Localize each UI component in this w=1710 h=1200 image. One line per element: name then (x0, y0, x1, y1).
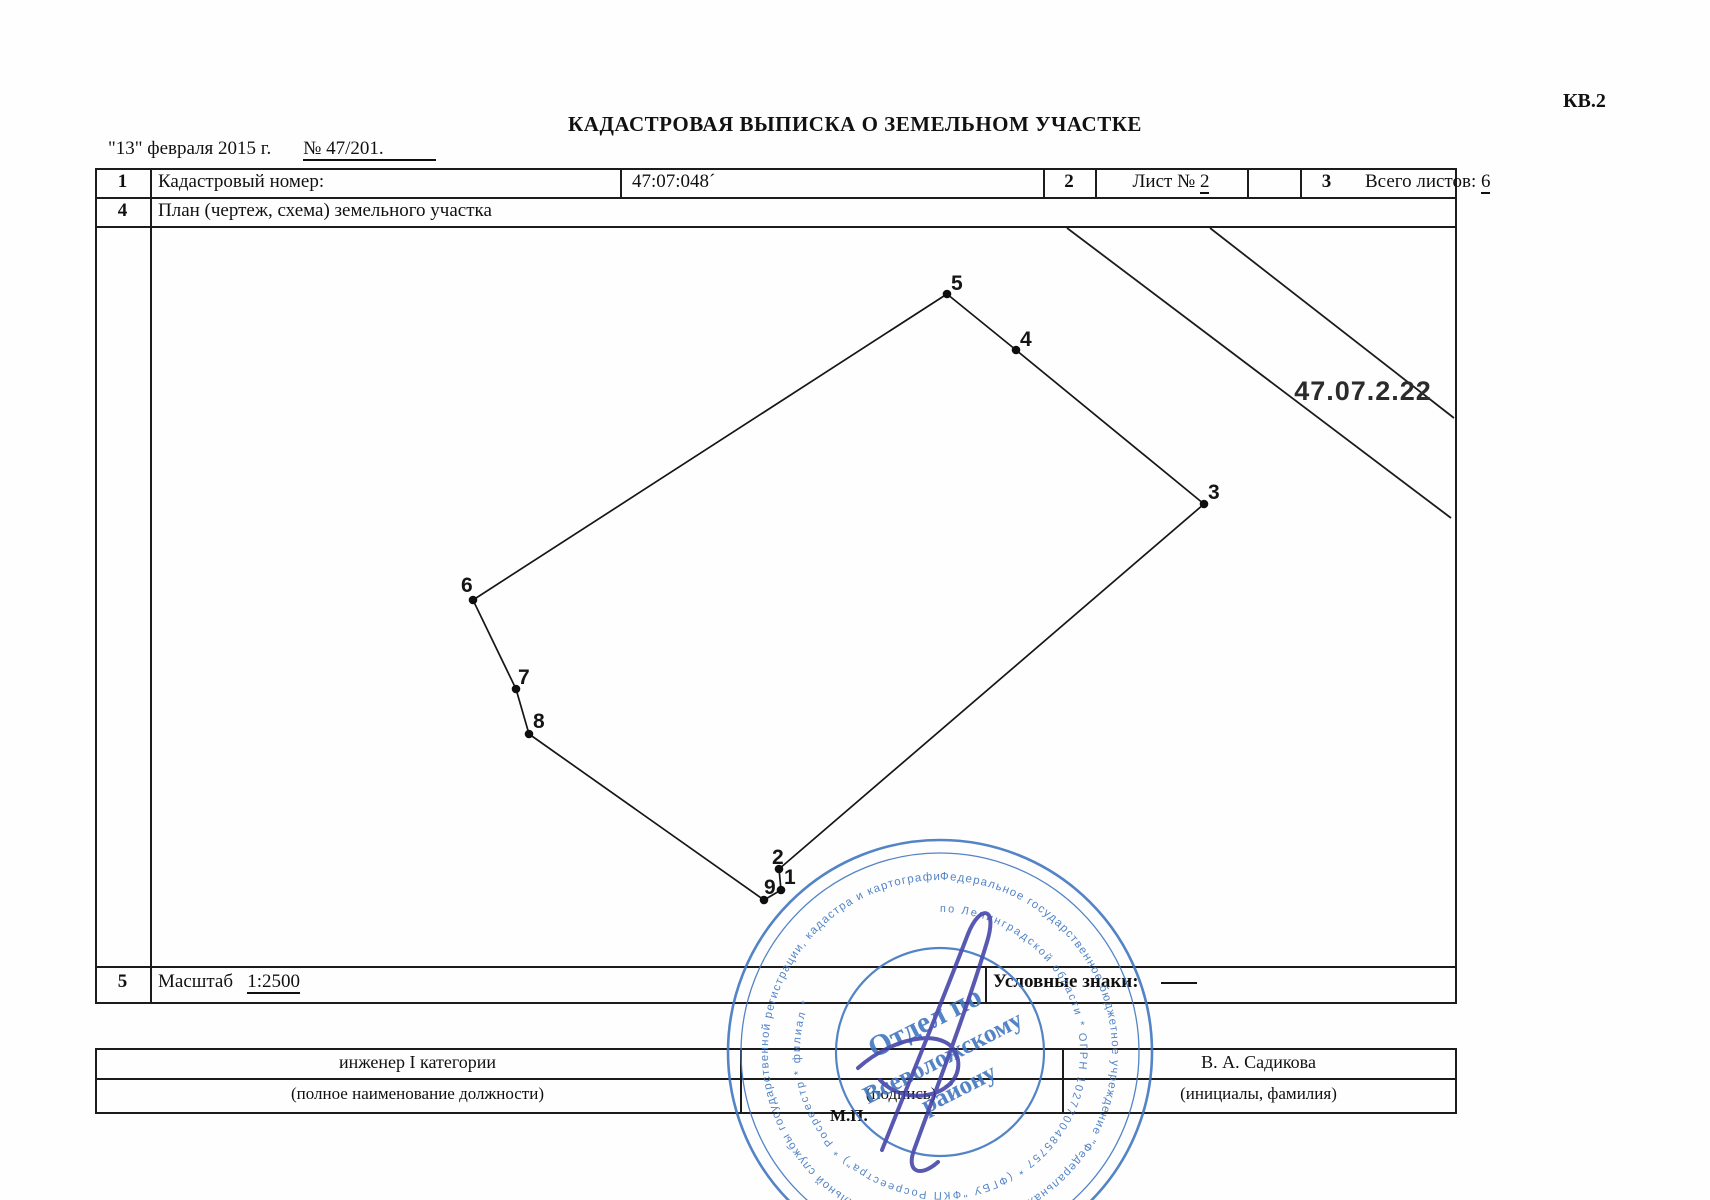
stamp-center-text: Отдел по Всеволожскому району (839, 968, 1043, 1141)
scale-value: 1:2500 (247, 971, 300, 994)
signature-caption: (подпись) (740, 1084, 1062, 1104)
total-sheets: Всего листов: 6 (1353, 171, 1615, 193)
table-border (620, 168, 622, 197)
seal-mark: М.П. (830, 1106, 868, 1126)
vertex-dot (1012, 346, 1021, 355)
table-border (95, 168, 97, 1004)
table-border (740, 1048, 742, 1114)
cadastral-extract-page: КВ.2 КАДАСТРОВАЯ ВЫПИСКА О ЗЕМЕЛЬНОМ УЧА… (0, 0, 1710, 1200)
table-border (1247, 168, 1249, 197)
vertex-label: 2 (772, 846, 784, 869)
vertex-label: 9 (764, 876, 776, 899)
position-caption: (полное наименование должности) (95, 1084, 740, 1104)
sheet-value: 2 (1200, 171, 1210, 194)
scale-row: Масштаб 1:2500 (158, 971, 300, 993)
table-border (95, 1078, 1457, 1080)
cadastral-number-value: 47:07:048´ (632, 171, 715, 193)
table-border (95, 1048, 1457, 1050)
svg-text:Отдел по: Отдел по (863, 980, 987, 1065)
table-border (95, 197, 1457, 199)
legend-label: Условные знаки: (993, 971, 1139, 992)
table-border (95, 1002, 1457, 1004)
vertex-dot (525, 730, 534, 739)
vertex-label: 7 (518, 666, 530, 689)
cadastral-block-label: 47.07.2.22 (1294, 376, 1432, 406)
sheet-number: Лист № 2 (1095, 171, 1247, 193)
vertex-dot (943, 290, 952, 299)
row-index: 4 (95, 200, 150, 222)
total-sheets-label: Всего листов: (1365, 171, 1476, 192)
plan-section-label: План (чертеж, схема) земельного участка (158, 200, 492, 222)
table-border (985, 966, 987, 1002)
row-index: 1 (95, 171, 150, 193)
table-border (95, 966, 1457, 968)
vertex-dot (1200, 500, 1209, 509)
document-title: КАДАСТРОВАЯ ВЫПИСКА О ЗЕМЕЛЬНОМ УЧАСТКЕ (0, 112, 1710, 137)
parcel-plan: 47.07.2.22543219876 (151, 228, 1456, 966)
name-caption: (инициалы, фамилия) (1062, 1084, 1455, 1104)
form-code: КВ.2 (1563, 90, 1606, 113)
row-index: 5 (95, 971, 150, 993)
sheet-label: Лист № (1133, 171, 1196, 192)
cadastral-number-label: Кадастровый номер: (158, 171, 324, 193)
date-line: "13" февраля 2015 г.№ 47/201. (108, 138, 436, 160)
total-sheets-value: 6 (1481, 171, 1491, 194)
scale-label: Масштаб (158, 971, 233, 992)
document-number: № 47/201. (303, 138, 435, 161)
legend-row: Условные знаки: (993, 971, 1197, 993)
vertex-label: 1 (784, 866, 796, 889)
road-line (1067, 228, 1451, 518)
vertex-label: 6 (461, 574, 473, 597)
legend-line-symbol (1161, 982, 1197, 984)
parcel-polygon (473, 294, 1204, 900)
table-border (95, 1112, 1457, 1114)
vertex-label: 4 (1020, 328, 1032, 351)
row-index: 2 (1043, 171, 1095, 193)
signatory-name: В. А. Садикова (1062, 1052, 1455, 1073)
vertex-label: 5 (951, 272, 963, 295)
table-border (95, 168, 1457, 170)
vertex-label: 8 (533, 710, 545, 733)
position-title: инженер I категории (95, 1052, 740, 1073)
date-text: "13" февраля 2015 г. (108, 138, 271, 159)
vertex-label: 3 (1208, 481, 1220, 504)
row-index: 3 (1300, 171, 1353, 193)
table-border (1455, 1048, 1457, 1114)
